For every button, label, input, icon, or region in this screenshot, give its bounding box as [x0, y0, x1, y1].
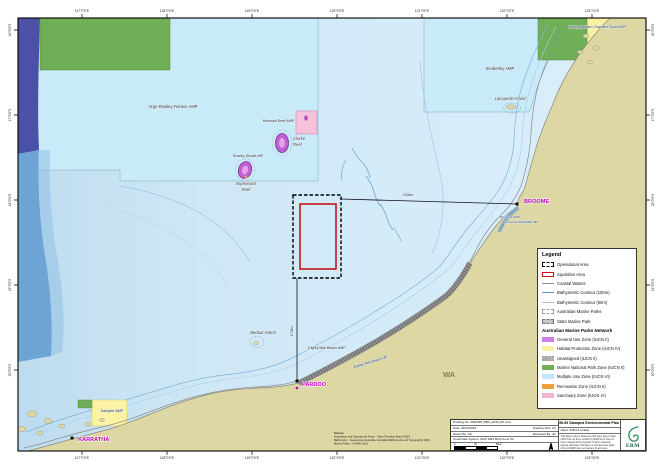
- recreation-zone-dot: [245, 176, 248, 179]
- legend-item-bathy-100: Bathymetric Contour (100m): [542, 288, 632, 297]
- legend-item-label: Habitat Protection Zone (IUCN IV): [557, 346, 620, 351]
- karratha-label: KARRATHA: [78, 437, 109, 443]
- dampier-amp-yellow-zone: [92, 400, 127, 426]
- bathy-50-swatch: [542, 302, 554, 303]
- graticule-label: 16°0'0"S: [8, 23, 12, 36]
- erm-logo-text: ERM: [626, 444, 640, 450]
- mermaid-reef: [304, 115, 308, 120]
- multiple-use-swatch: [542, 374, 554, 379]
- drawing-size: Drawing Size: A4: [533, 426, 556, 431]
- graticule-label: 122°0'0"E: [500, 9, 515, 13]
- bathy-100-swatch: [542, 292, 554, 293]
- eighty-mile-beach-amp-label: Eighty Mile Beach AMP: [308, 346, 346, 350]
- habitat-protection-swatch: [542, 346, 554, 351]
- source-line: Bathymetry - Geoscience Australia, Austr…: [334, 438, 430, 442]
- distance-pardoo-label: 170km: [290, 326, 294, 337]
- graticule-label: 117°0'0"E: [75, 456, 90, 460]
- legend-item-label: General Use Zone (IUCN II): [557, 337, 609, 342]
- legend-item-label: Sanctuary Zone (IUCN IA): [557, 393, 606, 398]
- bedout-island-label: Bedout Island: [250, 330, 276, 335]
- pardoo-label: PARDOO: [302, 382, 327, 388]
- legend-item-australian-marine-parks: Australian Marine Parks: [542, 307, 632, 316]
- imperieuse-reef-label2: Reef: [242, 187, 252, 192]
- lacepede-island-label: Lacepede Island: [495, 96, 526, 101]
- legend-item-label: Multiple Use Zone (IUCN VI): [557, 374, 610, 379]
- legend-item-habitat-protection: Habitat Protection Zone (IUCN IV): [542, 344, 632, 353]
- graticule-label: 120°0'0"E: [330, 9, 345, 13]
- mermaid-reef-amp-area: [296, 111, 317, 134]
- reviewed-by: Reviewed By: JD: [533, 432, 556, 437]
- clerke-reef-label: Clerke: [293, 136, 306, 141]
- scale-zero: 0: [454, 443, 455, 446]
- scale-bar-segments: [454, 446, 498, 450]
- legend-item-label: Marine National Park Zone (IUCN II): [557, 365, 625, 370]
- title-block: Drawing No: 0546498_BI59_A030_R0.mxd Dat…: [450, 419, 646, 451]
- roebuck-amp-label: Roebuck AMP: [500, 215, 520, 219]
- source-line: Marine Parks - CAPAD 2016: [334, 442, 369, 446]
- karratha-marker: [71, 437, 74, 440]
- north-arrow-icon: [547, 443, 555, 450]
- pardoo-marker: [296, 380, 299, 383]
- graticule-label: 117°0'0"E: [75, 9, 90, 13]
- argo-marine-national-park-zone: [40, 18, 170, 70]
- broome-label: BROOME: [524, 199, 549, 205]
- imperieuse-reef-label: Imperieuse: [236, 181, 257, 186]
- graticule-label: 118°0'0"E: [160, 456, 175, 460]
- erm-logo-box: ERM: [621, 420, 645, 450]
- legend-item-label: Operational Area: [557, 262, 588, 267]
- legend-panel: Legend Operational Area Aquisition Area …: [537, 248, 637, 409]
- source-heading: Source:: [334, 431, 344, 435]
- source-line: Acquisition and Operational Areas - Clie…: [334, 435, 411, 439]
- scale-bar: 0 25 50km: [454, 443, 502, 450]
- graticule-label: 119°0'0"E: [245, 456, 260, 460]
- clerke-reef-lagoon: [279, 138, 285, 148]
- broome-marker: [516, 203, 519, 206]
- legend-item-multiple-use: Multiple Use Zone (IUCN VI): [542, 372, 632, 381]
- lalang-garram-label: Lalang-garram / Camden Sound MP: [568, 25, 626, 29]
- sanctuary-swatch: [542, 393, 554, 398]
- legend-item-acquisition-area: Aquisition Area: [542, 269, 632, 278]
- legend-item-general-use: General Use Zone (IUCN II): [542, 335, 632, 344]
- graticule-label: 122°0'0"E: [500, 456, 515, 460]
- coordinate-system: Coordinate System: GDA 1994 MGA Zone 50: [453, 437, 513, 442]
- australian-marine-parks-swatch: [542, 309, 554, 314]
- graticule-label: 123°0'0"E: [585, 9, 600, 13]
- legend-item-coastal-waters: Coastal Waters: [542, 279, 632, 288]
- mermaid-reef-label: Mermaid Reef AMP: [263, 119, 295, 123]
- legend-item-label: Bathymetric Contour (100m): [557, 290, 610, 295]
- graticule-label: 119°0'0"E: [245, 9, 260, 13]
- legend-item-label: State Marine Park: [557, 319, 591, 324]
- distance-broome-label: 230km: [403, 193, 414, 197]
- graticule-label: 121°0'0"E: [415, 456, 430, 460]
- legend-item-label: Aquisition Area: [557, 272, 585, 277]
- general-use-swatch: [542, 337, 554, 342]
- legend-title: Legend: [542, 252, 632, 258]
- graticule-label: 16°0'0"S: [651, 23, 655, 36]
- rowley-shoals-label: Rowley Shoals MP: [233, 154, 264, 158]
- graticule-label: 17°0'0"S: [8, 108, 12, 121]
- graticule-label: 120°0'0"E: [330, 456, 345, 460]
- legend-item-label: Australian Marine Parks: [557, 309, 601, 314]
- graticule-label: 20°0'0"S: [651, 363, 655, 376]
- legend-item-label: Bathymetric Contour (50m): [557, 300, 607, 305]
- coastal-waters-swatch: [542, 283, 554, 284]
- legend-item-label: Coastal Waters: [557, 281, 585, 286]
- legend-item-operational-area: Operational Area: [542, 260, 632, 269]
- drawing-title: BI-59 Stamped Environmental Plan: [559, 420, 620, 428]
- unnamed-mp-label: Unnamed WA31586 MP: [504, 220, 537, 224]
- graticule-label: 19°0'0"S: [8, 278, 12, 291]
- title-block-info-column: Drawing No: 0546498_BI59_A030_R0.mxd Dat…: [451, 420, 559, 450]
- drawn-by: Drawn By: GK: [453, 432, 472, 437]
- graticule-label: 18°0'0"S: [8, 193, 12, 206]
- unassigned-swatch: [542, 356, 554, 361]
- argo-rowley-label: Argo-Rowley Terrace AMP: [148, 104, 197, 109]
- dampier-amp-label: Dampier AMP: [101, 409, 124, 413]
- graticule-label: 20°0'0"S: [8, 363, 12, 376]
- pardoo-second-marker: [296, 387, 299, 390]
- graticule-label: 123°0'0"E: [585, 456, 600, 460]
- dampier-amp-green-zone: [78, 400, 92, 408]
- drawing-no: Drawing No: 0546498_BI59_A030_R0.mxd: [453, 420, 511, 425]
- map-sheet: { "graticule": { "lon": ["117°0'0\"E","1…: [0, 0, 664, 469]
- legend-item-bathy-50: Bathymetric Contour (50m): [542, 298, 632, 307]
- state-marine-park-swatch: [542, 319, 554, 324]
- legend-item-unassigned: Unassigned (IUCN II): [542, 354, 632, 363]
- erm-swirl-icon: [625, 426, 641, 444]
- deep-water-band: [18, 18, 40, 154]
- graticule-label: 118°0'0"E: [160, 9, 175, 13]
- legend-item-label: Recreation Zone (IUCN II): [557, 384, 606, 389]
- legend-item-marine-national-park: Marine National Park Zone (IUCN II): [542, 363, 632, 372]
- scale-end: 50km: [496, 443, 502, 446]
- date: Date: 02/07/2019: [453, 426, 476, 431]
- legend-item-recreation: Recreation Zone (IUCN II): [542, 382, 632, 391]
- graticule-label: 17°0'0"S: [651, 108, 655, 121]
- legend-item-label: Unassigned (IUCN II): [557, 356, 597, 361]
- legend-network-header: Australian Marine Parks Network: [542, 326, 632, 335]
- state-label-wa: WA: [443, 370, 456, 379]
- legend-item-sanctuary: Sanctuary Zone (IUCN IA): [542, 391, 632, 400]
- operational-area-swatch: [542, 262, 554, 267]
- graticule-label: 18°0'0"S: [651, 193, 655, 206]
- disclaimer: This figure may be based on third party …: [559, 434, 620, 450]
- clerke-reef-label2: Reef: [293, 142, 303, 147]
- title-block-title-column: BI-59 Stamped Environmental Plan Client:…: [559, 420, 621, 450]
- graticule-label: 19°0'0"S: [651, 278, 655, 291]
- marine-national-park-swatch: [542, 365, 554, 370]
- legend-item-state-marine-park: State Marine Park: [542, 316, 632, 325]
- scale-row: 0 25 50km: [451, 443, 558, 450]
- recreation-swatch: [542, 384, 554, 389]
- graticule-label: 121°0'0"E: [415, 9, 430, 13]
- acquisition-area-swatch: [542, 272, 554, 277]
- scale-mid: 25: [474, 443, 477, 446]
- kimberley-amp-label: Kimberley AMP: [486, 66, 515, 71]
